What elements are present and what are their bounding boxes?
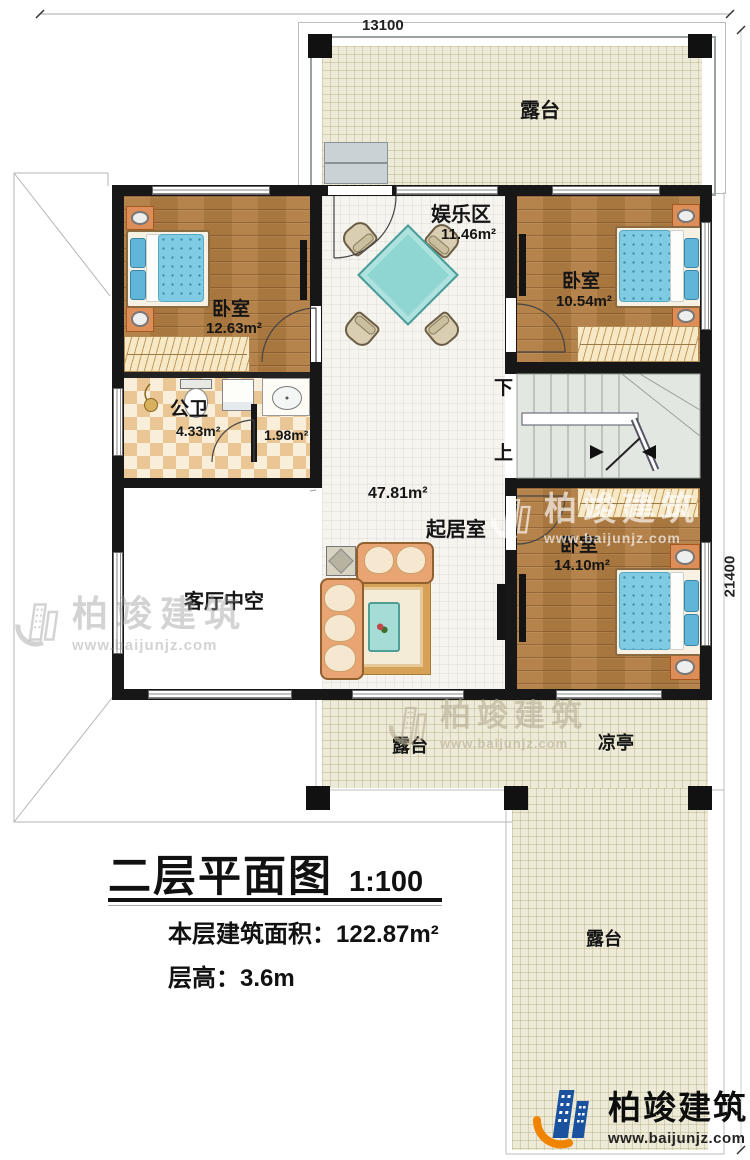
nightstand	[126, 306, 154, 332]
column	[504, 786, 528, 810]
living-label: 起居室	[426, 520, 486, 540]
bath-cabinet	[222, 379, 254, 411]
bed-mattress	[158, 234, 204, 302]
window-top-bedroom-right	[552, 186, 660, 195]
window-bottom-void	[148, 690, 292, 699]
title-underline-thin	[108, 905, 442, 906]
column	[308, 34, 332, 58]
wardrobe	[577, 488, 699, 518]
wall-stairs-bottom	[505, 478, 712, 488]
bedroom-left-label: 卧室	[212, 300, 250, 319]
void-floor	[124, 488, 310, 689]
dimension-height: 21400	[722, 547, 739, 607]
window-top-entertainment	[396, 186, 498, 195]
door-gap-bedroom-bottom-right	[506, 496, 516, 550]
entertainment-area: 11.46m²	[441, 227, 496, 242]
bathroom-area: 4.33m²	[176, 424, 220, 438]
dimension-width: 13100	[362, 17, 404, 34]
wall-bath-partition	[251, 404, 257, 462]
window-right-bedroom-bottom	[701, 542, 711, 646]
floor-area-line: 本层建筑面积：122.87m²	[168, 914, 439, 949]
pillow	[684, 270, 699, 300]
lamp-icon	[131, 311, 149, 327]
brand-url: www.baijunjz.com	[608, 1131, 748, 1146]
pavilion-label: 凉亭	[598, 734, 634, 752]
brand-logo: 柏竣建筑 www.baijunjz.com	[528, 1086, 748, 1150]
window-top-bedroom-left	[152, 186, 270, 195]
sofa-cushion	[324, 614, 356, 642]
window-left-bathroom	[113, 388, 123, 456]
sofa-cushion	[324, 644, 356, 672]
shower-head-icon	[144, 398, 158, 412]
pillow	[684, 238, 699, 268]
tv	[519, 234, 526, 296]
bed-mattress	[619, 230, 671, 302]
tv	[497, 584, 505, 640]
title-block: 二层平面图1:100	[108, 842, 423, 904]
window-bottom-bedroom	[556, 690, 662, 699]
terrace-top-label: 露台	[520, 101, 560, 121]
floor-height-line: 层高：3.6m	[168, 958, 295, 993]
pillow	[684, 614, 699, 646]
bedroom-top-right-label: 卧室	[562, 272, 600, 291]
wall-stairs-top	[505, 362, 712, 374]
lamp-icon	[677, 209, 695, 223]
lamp-icon	[675, 659, 695, 675]
floor-plan-canvas: 露台 露台 凉亭 露台 卧室 12.63m²	[0, 0, 750, 1160]
lamp-icon	[131, 211, 149, 225]
door-gap-terrace	[328, 186, 392, 195]
void-label: 客厅中空	[184, 592, 264, 612]
wall-bed-bath-divider	[124, 372, 310, 378]
pillow	[684, 580, 699, 612]
title-underline	[108, 898, 442, 902]
sofa-cushion	[364, 546, 394, 574]
brand-name: 柏竣建筑	[608, 1091, 748, 1124]
wash-basin	[272, 386, 302, 410]
living-area: 47.81m²	[368, 486, 428, 502]
nightstand	[670, 654, 700, 680]
pillow	[130, 238, 146, 268]
stairs-floor	[517, 374, 700, 478]
bed-sheet-fold	[670, 230, 684, 302]
brand-logo-icon	[528, 1086, 598, 1150]
window-left-void	[113, 552, 123, 654]
bedroom-top-right-area: 10.54m²	[556, 294, 612, 309]
plan-scale: 1:100	[349, 866, 423, 898]
nightstand	[672, 204, 700, 228]
lamp-icon	[677, 309, 695, 323]
wardrobe	[124, 336, 250, 372]
terrace-bottom-floor	[322, 700, 708, 788]
plan-title: 二层平面图	[108, 853, 333, 901]
corner-table	[326, 546, 356, 576]
nightstand	[126, 206, 154, 230]
door-bottom-living	[352, 690, 464, 699]
washroom-area: 1.98m²	[264, 428, 308, 442]
nightstand	[670, 544, 700, 570]
table-decor	[376, 622, 388, 634]
stairs-up-label: 上	[494, 444, 513, 463]
door-gap-bedroom-top-right	[506, 298, 516, 352]
window-right-bedroom-top	[701, 222, 711, 330]
bathroom-label: 公卫	[170, 400, 208, 419]
bed-mattress	[619, 572, 671, 650]
bed-sheet-fold	[670, 572, 684, 650]
column	[306, 786, 330, 810]
column	[688, 34, 712, 58]
terrace-right-label: 露台	[586, 930, 622, 948]
wardrobe	[577, 326, 699, 362]
wall-bath-void-divider	[112, 478, 322, 488]
lamp-icon	[675, 549, 695, 565]
sofa-cushion	[396, 546, 426, 574]
sofa-cushion	[324, 584, 356, 612]
column	[688, 786, 712, 810]
brand-logo-icon	[12, 601, 62, 648]
tv	[300, 240, 307, 300]
door-gap-bedroom-left	[311, 306, 321, 362]
pillow	[130, 270, 146, 300]
bedroom-bottom-right-label: 卧室	[560, 536, 598, 555]
entertainment-label: 娱乐区	[431, 205, 491, 225]
terrace-steps	[324, 142, 388, 184]
bedroom-left-area: 12.63m²	[206, 321, 262, 336]
tv	[519, 574, 526, 642]
terrace-bottom-label: 露台	[392, 737, 428, 755]
bedroom-bottom-right-area: 14.10m²	[554, 558, 610, 573]
stairs-down-label: 下	[494, 379, 513, 398]
